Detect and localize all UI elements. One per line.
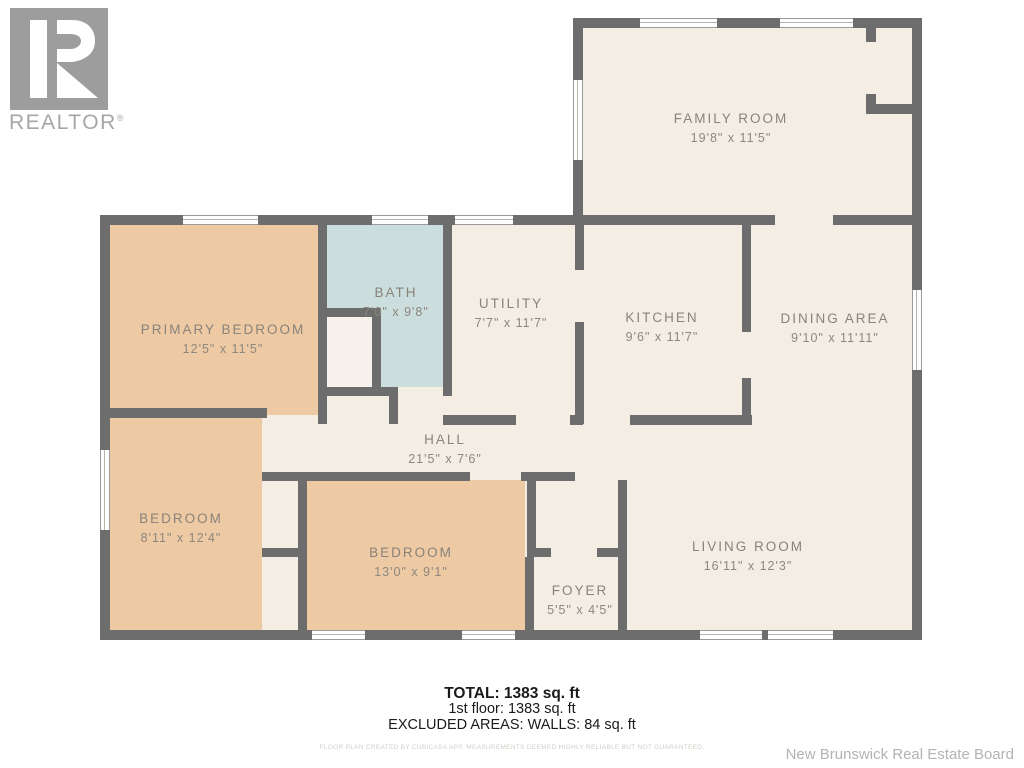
wall-segment	[573, 18, 922, 28]
room-dims: 9'6" x 11'7"	[625, 330, 698, 344]
room-label-hall: HALL 21'5" x 7'6"	[408, 432, 482, 466]
realtor-logo-icon	[10, 8, 108, 110]
window	[183, 215, 258, 225]
registered-mark: ®	[117, 113, 125, 123]
board-name-text: New Brunswick Real Estate Board	[786, 746, 1014, 763]
wall-segment	[866, 28, 876, 42]
wall-segment	[742, 378, 751, 424]
wall-segment	[575, 225, 584, 270]
primary-bedroom-floor	[109, 225, 318, 415]
room-name: UTILITY	[475, 296, 548, 311]
room-name: DINING AREA	[780, 311, 889, 326]
room-name: FOYER	[547, 583, 613, 598]
floor-plan-page: REALTOR®	[0, 0, 1024, 768]
room-label-dining-area: DINING AREA 9'10" x 11'11"	[780, 311, 889, 345]
wall-segment	[443, 225, 452, 396]
first-floor-area-text: 1st floor: 1383 sq. ft	[0, 702, 1024, 717]
window	[573, 80, 583, 160]
wall-segment	[742, 225, 751, 332]
wall-segment	[630, 415, 752, 425]
room-label-foyer: FOYER 5'5" x 4'5"	[547, 583, 613, 617]
realtor-logo-label: REALTOR®	[9, 111, 125, 135]
window	[700, 630, 762, 640]
room-label-bath: BATH 7'0" x 9'8"	[363, 285, 429, 319]
window	[912, 290, 922, 370]
window	[312, 630, 365, 640]
window	[640, 18, 717, 28]
window	[455, 215, 513, 225]
wall-segment	[618, 480, 627, 631]
wall-segment	[527, 472, 536, 557]
wall-segment	[100, 408, 267, 418]
wall-segment	[262, 548, 307, 557]
room-dims: 7'0" x 9'8"	[363, 305, 429, 319]
room-name: BATH	[363, 285, 429, 300]
room-name: FAMILY ROOM	[674, 111, 789, 126]
bath-closet-floor	[327, 317, 372, 387]
wall-segment	[833, 215, 922, 225]
wall-segment	[912, 225, 922, 640]
room-name: LIVING ROOM	[692, 539, 804, 554]
room-dims: 16'11" x 12'3"	[692, 559, 804, 573]
window	[462, 630, 515, 640]
wall-segment	[575, 322, 584, 424]
realtor-logo-svg	[10, 8, 108, 110]
wall-segment	[443, 415, 516, 425]
room-label-utility: UTILITY 7'7" x 11'7"	[475, 296, 548, 330]
window	[768, 630, 833, 640]
area-summary: TOTAL: 1383 sq. ft 1st floor: 1383 sq. f…	[0, 686, 1024, 733]
window	[100, 450, 110, 530]
total-area-text: TOTAL: 1383 sq. ft	[0, 686, 1024, 701]
window	[372, 215, 428, 225]
room-dims: 9'10" x 11'11"	[780, 331, 889, 345]
excluded-area-text: EXCLUDED AREAS: WALLS: 84 sq. ft	[0, 718, 1024, 733]
room-label-bedroom-mid: BEDROOM 13'0" x 9'1"	[369, 545, 453, 579]
room-dims: 12'5" x 11'5"	[141, 342, 306, 356]
room-dims: 7'7" x 11'7"	[475, 316, 548, 330]
wall-segment	[866, 104, 912, 114]
wall-segment	[262, 472, 470, 481]
room-label-family-room: FAMILY ROOM 19'8" x 11'5"	[674, 111, 789, 145]
wall-segment	[527, 548, 551, 557]
window	[780, 18, 853, 28]
wall-segment	[389, 396, 398, 424]
room-label-primary-bedroom: PRIMARY BEDROOM 12'5" x 11'5"	[141, 322, 306, 356]
wall-segment	[525, 557, 534, 631]
room-name: BEDROOM	[139, 511, 223, 526]
room-dims: 21'5" x 7'6"	[408, 452, 482, 466]
room-name: KITCHEN	[625, 310, 698, 325]
wall-segment	[912, 18, 922, 230]
wall-segment	[372, 308, 381, 396]
room-dims: 5'5" x 4'5"	[547, 603, 613, 617]
room-name: PRIMARY BEDROOM	[141, 322, 306, 337]
room-name: HALL	[408, 432, 482, 447]
room-name: BEDROOM	[369, 545, 453, 560]
room-label-living-room: LIVING ROOM 16'11" x 12'3"	[692, 539, 804, 573]
room-dims: 8'11" x 12'4"	[139, 531, 223, 545]
room-label-bedroom-left: BEDROOM 8'11" x 12'4"	[139, 511, 223, 545]
room-dims: 13'0" x 9'1"	[369, 565, 453, 579]
room-dims: 19'8" x 11'5"	[674, 131, 789, 145]
wall-segment	[100, 215, 110, 640]
wall-segment	[318, 387, 398, 396]
room-label-kitchen: KITCHEN 9'6" x 11'7"	[625, 310, 698, 344]
